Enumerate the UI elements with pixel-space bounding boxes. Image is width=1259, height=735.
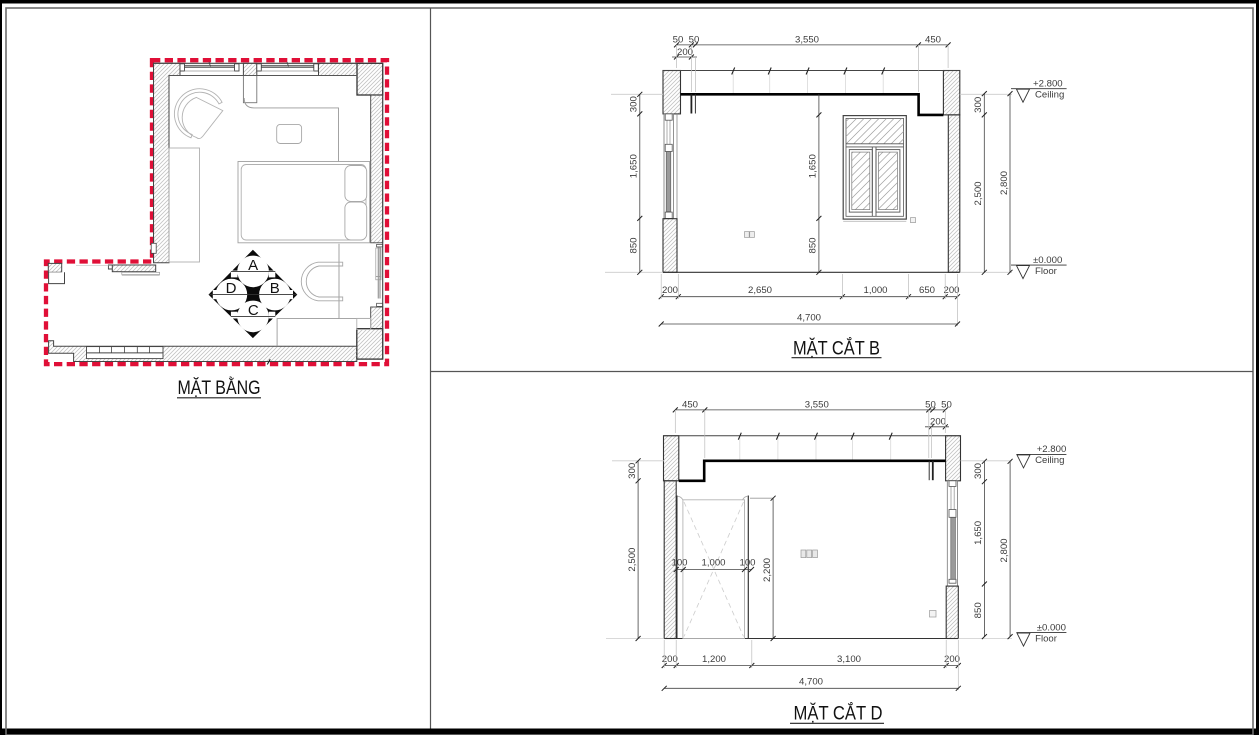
svg-text:300: 300 xyxy=(973,97,984,113)
svg-text:50: 50 xyxy=(925,400,936,411)
svg-text:200: 200 xyxy=(943,285,959,296)
svg-text:850: 850 xyxy=(973,602,984,618)
svg-text:1,000: 1,000 xyxy=(863,285,887,296)
svg-text:2,500: 2,500 xyxy=(973,181,984,205)
svg-text:2,200: 2,200 xyxy=(762,558,773,582)
svg-text:300: 300 xyxy=(973,463,984,479)
svg-text:+2.800: +2.800 xyxy=(1037,444,1067,455)
svg-text:1,650: 1,650 xyxy=(629,154,640,178)
svg-text:100: 100 xyxy=(739,558,755,569)
svg-text:MẶT CẮT B: MẶT CẮT B xyxy=(793,337,880,359)
svg-text:200: 200 xyxy=(677,47,693,58)
svg-text:850: 850 xyxy=(808,237,819,253)
svg-text:A: A xyxy=(248,257,258,274)
svg-text:450: 450 xyxy=(925,35,941,46)
svg-text:1,200: 1,200 xyxy=(702,654,726,665)
svg-text:300: 300 xyxy=(627,463,638,479)
svg-text:3,100: 3,100 xyxy=(837,654,861,665)
svg-text:50: 50 xyxy=(673,35,684,46)
svg-text:200: 200 xyxy=(930,416,946,427)
svg-text:MẶT CẮT D: MẶT CẮT D xyxy=(794,703,883,725)
svg-text:50: 50 xyxy=(941,400,952,411)
svg-text:2,800: 2,800 xyxy=(999,538,1010,562)
svg-text:Ceiling: Ceiling xyxy=(1035,455,1064,466)
svg-text:3,550: 3,550 xyxy=(805,400,829,411)
svg-text:4,700: 4,700 xyxy=(797,312,821,323)
svg-text:MẶT BẰNG: MẶT BẰNG xyxy=(178,377,261,399)
svg-text:B: B xyxy=(270,280,280,297)
svg-text:Floor: Floor xyxy=(1035,633,1058,644)
svg-text:1,650: 1,650 xyxy=(973,521,984,545)
svg-text:650: 650 xyxy=(919,285,935,296)
svg-text:+2.800: +2.800 xyxy=(1033,79,1063,90)
svg-text:3,550: 3,550 xyxy=(795,35,819,46)
svg-text:2,650: 2,650 xyxy=(748,285,772,296)
svg-text:±0.000: ±0.000 xyxy=(1037,622,1066,633)
svg-text:Ceiling: Ceiling xyxy=(1035,90,1064,101)
svg-text:Floor: Floor xyxy=(1035,266,1058,277)
svg-text:C: C xyxy=(248,302,259,319)
svg-text:1,000: 1,000 xyxy=(701,558,725,569)
svg-text:300: 300 xyxy=(629,96,640,112)
svg-text:2,800: 2,800 xyxy=(999,171,1010,195)
svg-text:±0.000: ±0.000 xyxy=(1033,255,1062,266)
svg-text:50: 50 xyxy=(689,35,700,46)
svg-text:450: 450 xyxy=(682,400,698,411)
svg-text:2,500: 2,500 xyxy=(627,548,638,572)
svg-text:100: 100 xyxy=(671,558,687,569)
svg-text:200: 200 xyxy=(662,285,678,296)
svg-text:850: 850 xyxy=(629,237,640,253)
svg-text:4,700: 4,700 xyxy=(799,677,823,688)
svg-text:D: D xyxy=(226,280,237,297)
svg-text:1,650: 1,650 xyxy=(808,154,819,178)
